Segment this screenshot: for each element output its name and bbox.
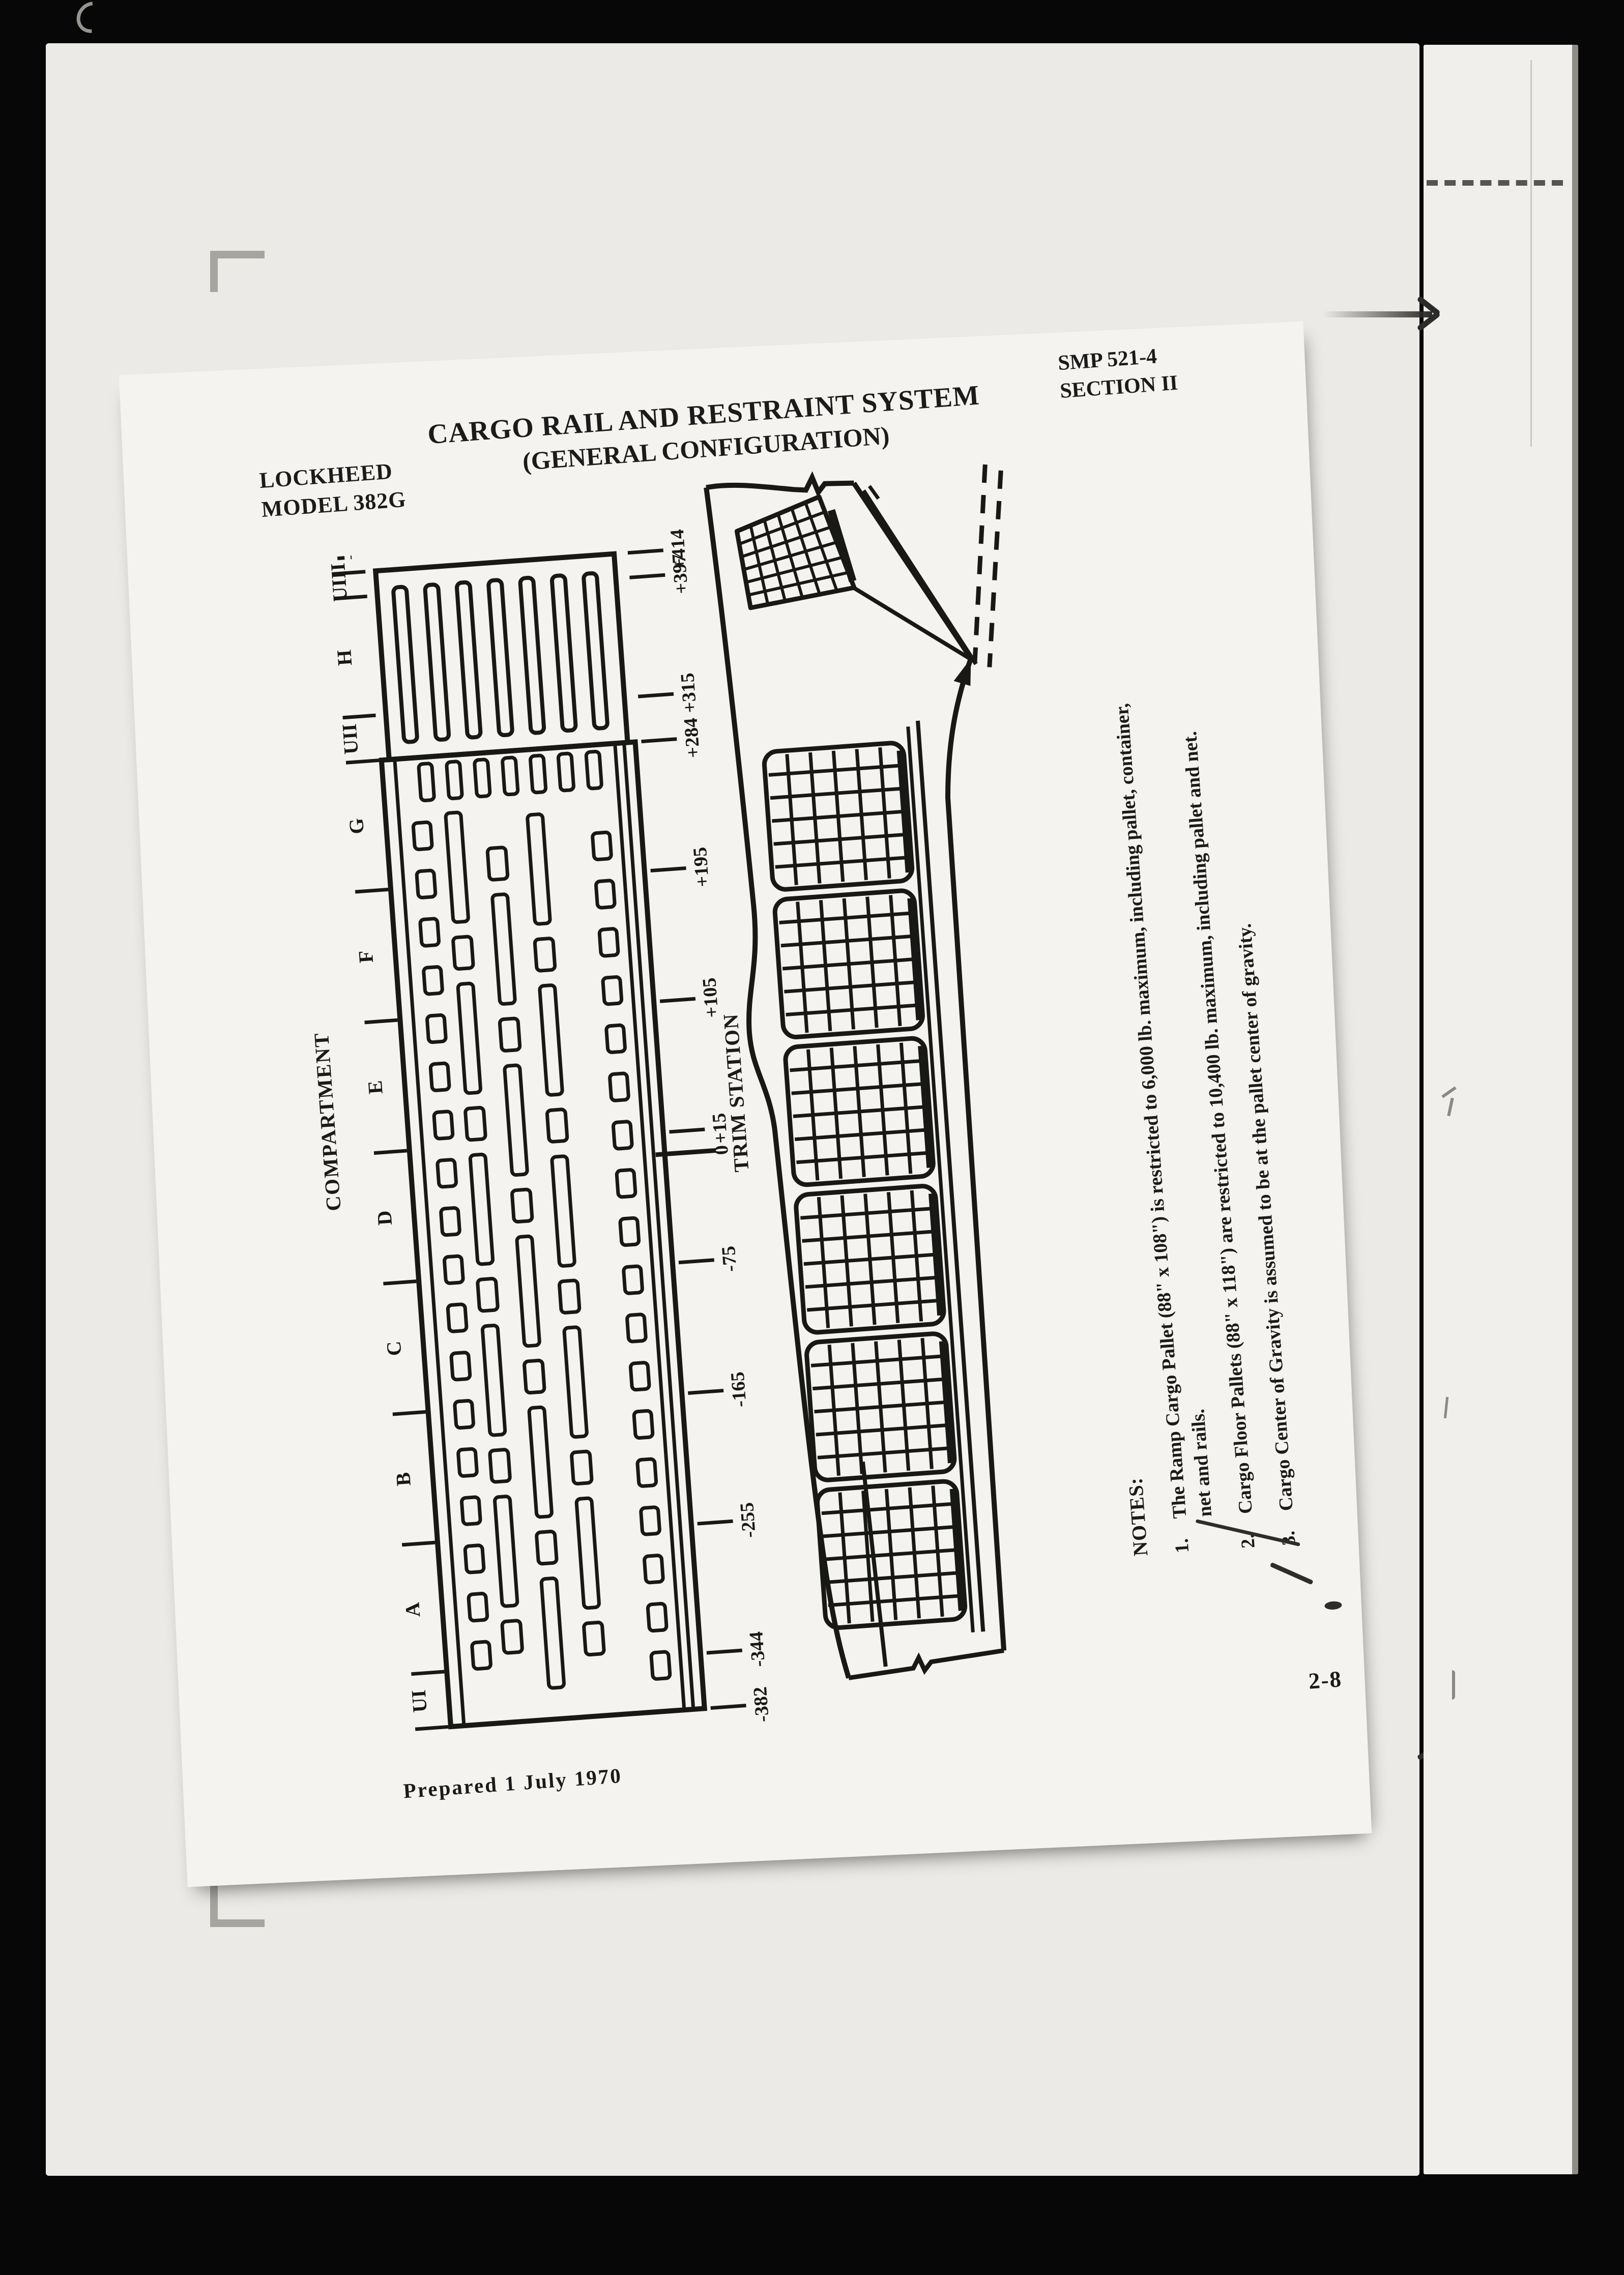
- tiedown-fitting: [477, 1278, 498, 1311]
- tiedown-slot: [446, 761, 462, 799]
- ramp-rail-slot: [584, 573, 608, 728]
- handwritten-mark: [70, 0, 114, 39]
- tiedown-fitting: [451, 1352, 471, 1380]
- tiedown-fitting: [524, 1360, 544, 1393]
- tiedown-slot: [558, 753, 574, 791]
- door-crossbar: [869, 485, 879, 499]
- tiedown-fitting: [512, 1189, 532, 1222]
- copier-bed: LOCKHEED MODEL 382G CARGO RAIL AND RESTR…: [46, 43, 1419, 2176]
- tiedown-slot: [474, 759, 490, 797]
- trim-station-tick: [670, 1129, 705, 1132]
- trim-station-tick: [707, 1650, 742, 1653]
- floor-rail: [527, 814, 550, 924]
- tiedown-fitting: [536, 1531, 557, 1564]
- trim-station-tick: [638, 694, 674, 696]
- compartment-label: UIII: [326, 562, 352, 602]
- compartment-label: E: [363, 1080, 387, 1095]
- pen-mark: [1324, 1601, 1342, 1610]
- floor-pallet-restraint-bar: [943, 1341, 951, 1463]
- compartment-boundary-tick: [402, 1542, 435, 1545]
- trim-station-label: +315: [677, 672, 701, 713]
- tiedown-fitting: [465, 1545, 484, 1572]
- tiedown-fitting: [547, 1109, 567, 1142]
- tiedown-fitting: [427, 1015, 446, 1042]
- ramp-rail-slot: [488, 580, 513, 736]
- compartment-label: F: [354, 950, 378, 964]
- trim-station-tick: [698, 1521, 733, 1524]
- boundary-dash: [337, 558, 352, 559]
- tiedown-fitting: [448, 1304, 467, 1331]
- trim-station-tick: [679, 1260, 714, 1263]
- tiedown-fitting: [417, 870, 436, 898]
- tiedown-fitting: [472, 1642, 491, 1669]
- compartment-boundary-tick: [365, 1020, 398, 1023]
- ramp-rail-slot: [552, 575, 576, 731]
- trim-station-tick: [651, 868, 686, 870]
- floor-rail: [564, 1327, 587, 1437]
- tiedown-fitting: [630, 1362, 650, 1390]
- compartment-label: A: [400, 1601, 424, 1618]
- tiedown-fitting: [413, 822, 432, 850]
- scanned-manual-page: LOCKHEED MODEL 382G CARGO RAIL AND RESTR…: [0, 0, 1624, 2275]
- compartment-boundary-tick: [355, 889, 388, 892]
- tiedown-fitting: [458, 1449, 477, 1476]
- compartment-boundary-tick: [393, 1412, 426, 1414]
- tiedown-fitting: [502, 1620, 523, 1653]
- compartment-label: D: [372, 1210, 396, 1226]
- trim-station-label: -75: [718, 1245, 741, 1273]
- ramp-surface: [854, 580, 971, 667]
- tiedown-fitting: [641, 1507, 660, 1534]
- right-side-rail: [615, 743, 684, 1710]
- floor-rail: [482, 1325, 505, 1436]
- publisher-block: LOCKHEED MODEL 382G: [258, 456, 407, 524]
- tiedown-fitting: [627, 1314, 646, 1341]
- tiedown-fitting: [620, 1218, 640, 1245]
- compartment-label: UII: [338, 723, 363, 755]
- ramp-rail-slot: [425, 585, 449, 740]
- ramp-rail-slot: [456, 582, 481, 738]
- floor-pallet-restraint-bar: [911, 898, 920, 1020]
- tiedown-fitting: [423, 967, 443, 994]
- floor-rail: [492, 894, 515, 1004]
- page-content: LOCKHEED MODEL 382G CARGO RAIL AND RESTR…: [100, 307, 1391, 1902]
- trim-station-label: +284: [680, 717, 704, 759]
- doc-reference: SMP 521-4 SECTION II: [1057, 341, 1179, 405]
- floor-pallet-restraint-bar: [901, 750, 909, 872]
- stray-mark: [1447, 1098, 1454, 1116]
- floor-pallet-restraint-bar: [922, 1046, 931, 1168]
- trim-station-label: -255: [736, 1502, 760, 1538]
- tiedown-fitting: [559, 1280, 579, 1312]
- stray-mark: [1444, 1397, 1448, 1418]
- page-crease: [1530, 60, 1532, 447]
- tiedown-fitting: [617, 1170, 636, 1197]
- inner-contour-line: [863, 1461, 886, 1667]
- trim-station-label: +397: [668, 553, 692, 594]
- tiedown-fitting: [535, 938, 555, 971]
- tiedown-fitting: [596, 880, 615, 908]
- tiedown-slot: [419, 763, 434, 801]
- floor-rail: [539, 985, 562, 1095]
- tiedown-fitting: [461, 1497, 481, 1524]
- tiedown-fitting: [434, 1111, 453, 1139]
- compartment-label: G: [344, 818, 368, 835]
- compartment-label: UI: [407, 1689, 431, 1713]
- floor-rail: [470, 1154, 493, 1265]
- nose-break-edge: [848, 1650, 1005, 1678]
- tiedown-fitting: [634, 1411, 653, 1438]
- floor-pallet-restraint-bar: [953, 1489, 962, 1611]
- floor-rail: [541, 1578, 564, 1688]
- tiedown-fitting: [465, 1107, 485, 1140]
- stray-mark: [1452, 1670, 1455, 1700]
- stray-mark: [1441, 1086, 1457, 1098]
- compartment-boundary-tick: [411, 1672, 444, 1674]
- tiedown-slot: [530, 755, 546, 793]
- pen-mark: [1270, 1562, 1314, 1585]
- compartment-label: H: [332, 649, 356, 666]
- ramp-rail-slot: [393, 587, 418, 742]
- trim-station-tick: [642, 739, 677, 742]
- ramp-hinge-fitting: [952, 658, 973, 687]
- floor-rail: [495, 1496, 517, 1607]
- trim-station-label: -382: [749, 1686, 773, 1723]
- tiedown-fitting: [592, 832, 612, 860]
- compartment-boundary-tick: [415, 1727, 448, 1729]
- compartment-boundary-tick: [383, 1281, 416, 1284]
- tiedown-fitting: [420, 918, 439, 946]
- margin-arrow-icon: [1323, 311, 1432, 317]
- floor-rail: [552, 1156, 574, 1266]
- adjacent-page-edge: [1424, 45, 1578, 2174]
- tiedown-slot: [502, 757, 518, 795]
- tiedown-fitting: [610, 1073, 629, 1100]
- tiedown-fitting: [487, 847, 508, 880]
- tiedown-fitting: [469, 1593, 488, 1621]
- compartment-boundary-tick: [374, 1151, 407, 1153]
- trim-station-tick: [629, 575, 665, 577]
- tiedown-fitting: [571, 1451, 592, 1484]
- tiedown-slot: [586, 751, 602, 789]
- floor-rail: [458, 983, 481, 1094]
- tiedown-fitting: [500, 1018, 520, 1051]
- floor-rail: [529, 1407, 552, 1518]
- note-number: 1.: [1167, 1516, 1221, 1554]
- trim-station-label: -165: [727, 1371, 751, 1408]
- floor-pallet-restraint-bar: [933, 1193, 941, 1315]
- tiedown-fitting: [606, 1025, 625, 1053]
- cargo-floor-line: [908, 726, 973, 1632]
- tiedown-fitting: [430, 1063, 450, 1091]
- document-page: LOCKHEED MODEL 382G CARGO RAIL AND RESTR…: [119, 322, 1372, 1887]
- trim-station-label: +195: [689, 847, 714, 888]
- tiedown-fitting: [489, 1449, 510, 1482]
- tiedown-fitting: [444, 1256, 463, 1284]
- floor-rail: [576, 1498, 599, 1609]
- ramp-rail-slot: [520, 577, 544, 733]
- trim-station-tick: [711, 1705, 746, 1708]
- page-number: 2-8: [1308, 1666, 1343, 1695]
- tiedown-fitting: [441, 1208, 460, 1235]
- tiedown-fitting: [437, 1159, 456, 1187]
- copier-corner-mark: [210, 251, 265, 292]
- floor-rail: [517, 1236, 540, 1347]
- tiedown-fitting: [644, 1555, 663, 1583]
- compartment-boundary-tick: [343, 715, 376, 718]
- trim-station-label: -344: [745, 1631, 769, 1668]
- trim-station-tick: [660, 999, 695, 1001]
- trim-station-tick: [688, 1390, 723, 1393]
- tiedown-fitting: [648, 1603, 667, 1631]
- floor-rail: [446, 812, 469, 923]
- compartment-label: B: [391, 1472, 415, 1487]
- tiedown-fitting: [623, 1266, 643, 1294]
- right-side-rail: [624, 743, 693, 1709]
- trim-station-tick: [628, 550, 663, 553]
- tiedown-fitting: [599, 928, 619, 956]
- tiedown-fitting: [637, 1459, 656, 1486]
- compartment-boundary-tick: [346, 761, 379, 763]
- dashed-tear-line: [1427, 180, 1563, 186]
- ramp-pallet-restraint-bar: [831, 509, 853, 582]
- tiedown-fitting: [651, 1652, 671, 1679]
- floor-rail: [504, 1065, 527, 1176]
- aft-fuselage-top: [706, 475, 854, 501]
- tiedown-fitting: [613, 1121, 632, 1149]
- tiedown-fitting: [453, 937, 473, 969]
- tiedown-fitting: [603, 977, 622, 1004]
- tiedown-fitting: [454, 1401, 474, 1428]
- tiedown-fitting: [584, 1622, 604, 1655]
- compartment-label: C: [382, 1340, 406, 1357]
